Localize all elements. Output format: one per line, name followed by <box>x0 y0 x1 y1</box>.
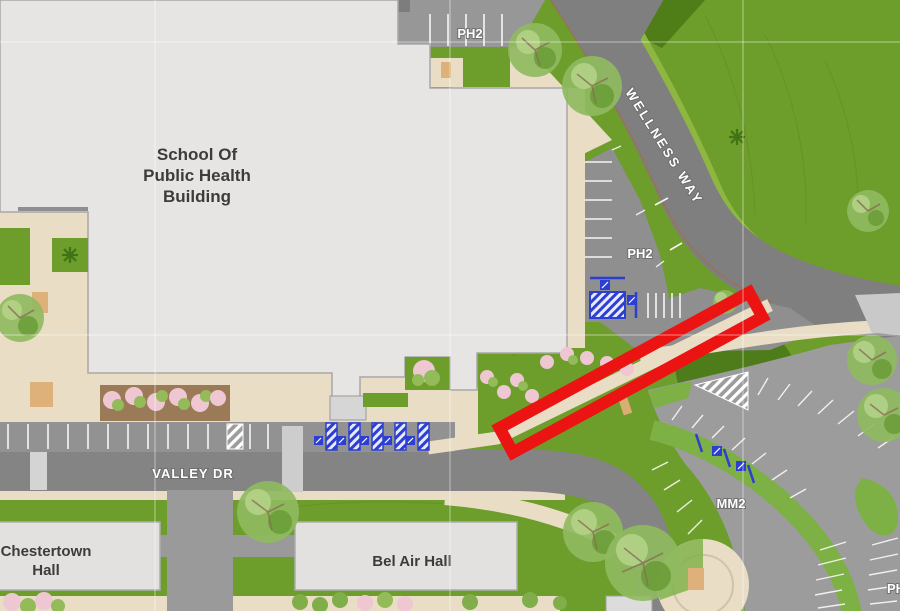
label-school-of-public-health-3: Building <box>163 187 231 206</box>
label-school-of-public-health-2: Public Health <box>143 166 251 185</box>
crosswalk <box>282 426 303 492</box>
label-bel-air-hall: Bel Air Hall <box>372 553 451 570</box>
tree-icon <box>237 481 299 543</box>
tree-icon <box>562 56 622 116</box>
label-lot-mm2: MM2 <box>717 496 746 511</box>
label-lot-ph2-east: PH2 <box>627 246 652 261</box>
campus-map: School Of Public Health Building Chester… <box>0 0 900 611</box>
label-lot-ph-partial: PH <box>887 581 900 596</box>
tree-icon <box>847 190 889 232</box>
label-school-of-public-health-1: School Of <box>157 145 238 164</box>
label-chestertown-hall-1: Chestertown <box>1 543 92 560</box>
tree-icon <box>847 335 897 385</box>
tree-icon <box>605 525 681 601</box>
tree-icon <box>508 23 562 77</box>
label-lot-ph2-north: PH2 <box>457 26 482 41</box>
label-chestertown-hall-2: Hall <box>32 562 60 579</box>
star-tree-icon <box>62 247 78 263</box>
label-valley-dr: VALLEY DR <box>152 466 233 481</box>
crosswalk <box>30 452 47 490</box>
shelter-structure <box>330 396 366 420</box>
